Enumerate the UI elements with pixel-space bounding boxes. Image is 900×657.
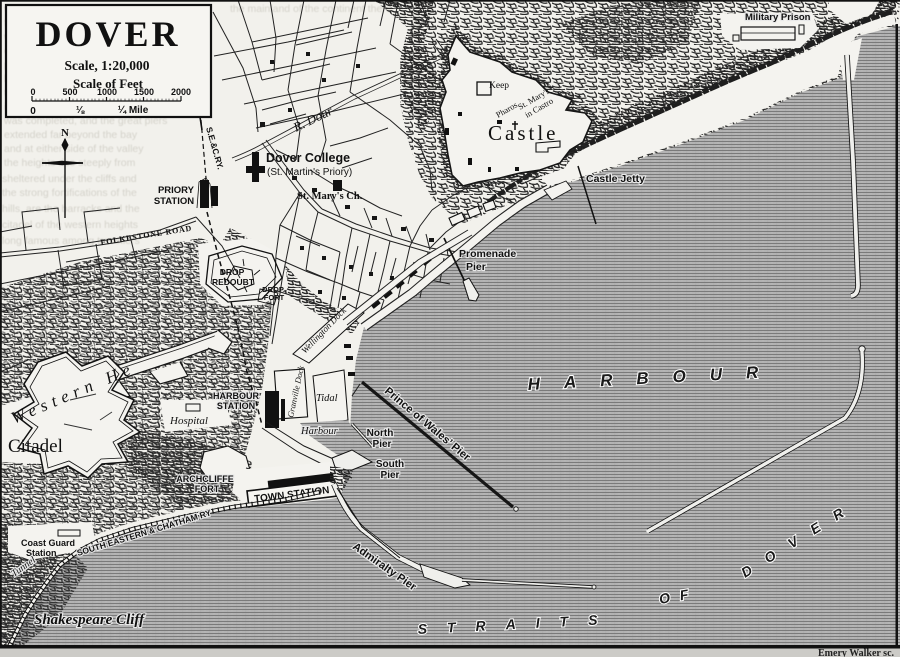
svg-text:Castle Jetty: Castle Jetty: [586, 173, 645, 185]
svg-text:Emery Walker sc.: Emery Walker sc.: [818, 648, 895, 657]
svg-text:Citadel: Citadel: [8, 436, 63, 457]
svg-text:0: 0: [30, 87, 35, 97]
svg-text:(St. Martin's Priory): (St. Martin's Priory): [267, 167, 352, 178]
svg-text:2000: 2000: [171, 87, 191, 97]
svg-text:PRIORY: PRIORY: [158, 185, 195, 196]
svg-text:DROP: DROP: [220, 267, 245, 277]
svg-text:North: North: [367, 428, 394, 439]
svg-text:Harbour: Harbour: [300, 426, 339, 437]
svg-text:FORT: FORT: [264, 293, 285, 302]
svg-text:STATION: STATION: [217, 401, 255, 411]
svg-text:citadel of the western heights: citadel of the western heights: [2, 219, 138, 231]
svg-text:Keep: Keep: [489, 81, 509, 91]
svg-text:and at either side of the vall: and at either side of the valley: [4, 143, 144, 155]
svg-text:0: 0: [30, 106, 36, 117]
svg-text:HARBOUR: HARBOUR: [213, 391, 259, 401]
svg-text:DOVER: DOVER: [35, 14, 180, 54]
svg-text:sheltered under the cliffs and: sheltered under the cliffs and: [2, 173, 137, 185]
svg-text:Dover College: Dover College: [266, 151, 350, 165]
svg-text:1500: 1500: [134, 87, 154, 97]
svg-text:the strong fortifications of t: the strong fortifications of the: [2, 187, 137, 199]
svg-text:Castle: Castle: [488, 121, 559, 145]
svg-text:Scale, 1:20,000: Scale, 1:20,000: [64, 58, 149, 73]
svg-text:Coast Guard: Coast Guard: [21, 538, 75, 548]
svg-text:Hospital: Hospital: [169, 415, 208, 427]
svg-text:Military Prison: Military Prison: [745, 12, 811, 23]
svg-text:500: 500: [62, 87, 77, 97]
svg-text:South: South: [376, 459, 404, 470]
svg-text:Pier: Pier: [466, 261, 486, 273]
svg-text:N: N: [61, 127, 69, 139]
svg-text:Promenade: Promenade: [459, 248, 516, 260]
svg-text:St. Mary's Ch.: St. Mary's Ch.: [297, 191, 363, 202]
svg-text:⅛: ⅛: [76, 105, 85, 116]
svg-text:Pier: Pier: [381, 470, 400, 481]
svg-text:extended far beyond the bay: extended far beyond the bay: [4, 129, 138, 141]
svg-text:FORT: FORT: [195, 484, 220, 494]
svg-text:¼ Mile: ¼ Mile: [118, 105, 149, 116]
svg-text:ARCHCLIFFE: ARCHCLIFFE: [176, 474, 234, 484]
svg-text:Tidal: Tidal: [316, 393, 338, 404]
svg-text:Shakespeare Cliff: Shakespeare Cliff: [34, 612, 146, 628]
svg-text:STATION: STATION: [154, 196, 194, 207]
svg-text:1000: 1000: [97, 87, 117, 97]
svg-text:REDOUBT: REDOUBT: [212, 277, 255, 287]
svg-text:Pier: Pier: [373, 439, 392, 450]
svg-text:hills, are the barracks and th: hills, are the barracks and the: [2, 203, 140, 215]
svg-text:the mainland of the continent: the mainland of the continent there: [230, 3, 392, 15]
